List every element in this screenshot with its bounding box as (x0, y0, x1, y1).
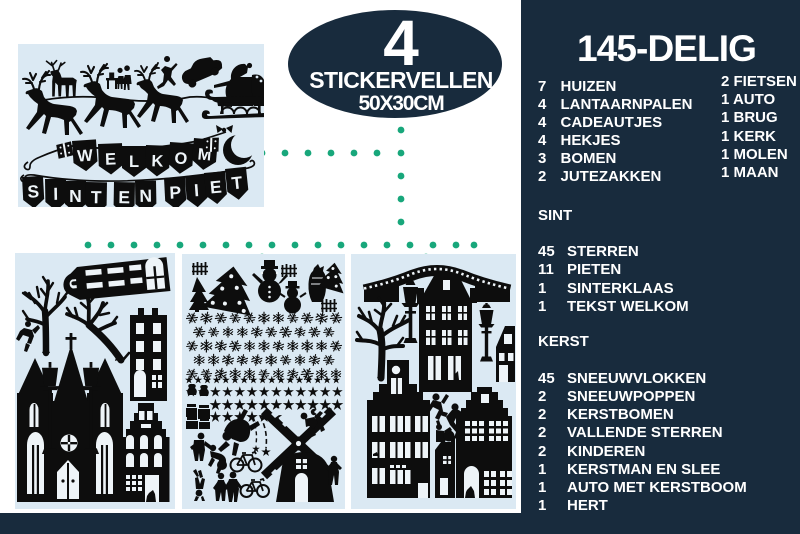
svg-text:O: O (174, 149, 188, 168)
svg-text:E: E (118, 187, 130, 207)
svg-text:N: N (69, 186, 82, 206)
svg-text:P: P (169, 182, 182, 203)
svg-text:W: W (77, 147, 94, 166)
svg-text:E: E (105, 150, 117, 168)
svg-text:N: N (139, 186, 152, 206)
svg-text:I: I (53, 184, 58, 204)
svg-text:L: L (129, 153, 139, 171)
svg-text:E: E (209, 177, 222, 198)
svg-text:S: S (27, 181, 40, 202)
svg-text:K: K (151, 152, 164, 170)
svg-text:T: T (91, 187, 102, 207)
